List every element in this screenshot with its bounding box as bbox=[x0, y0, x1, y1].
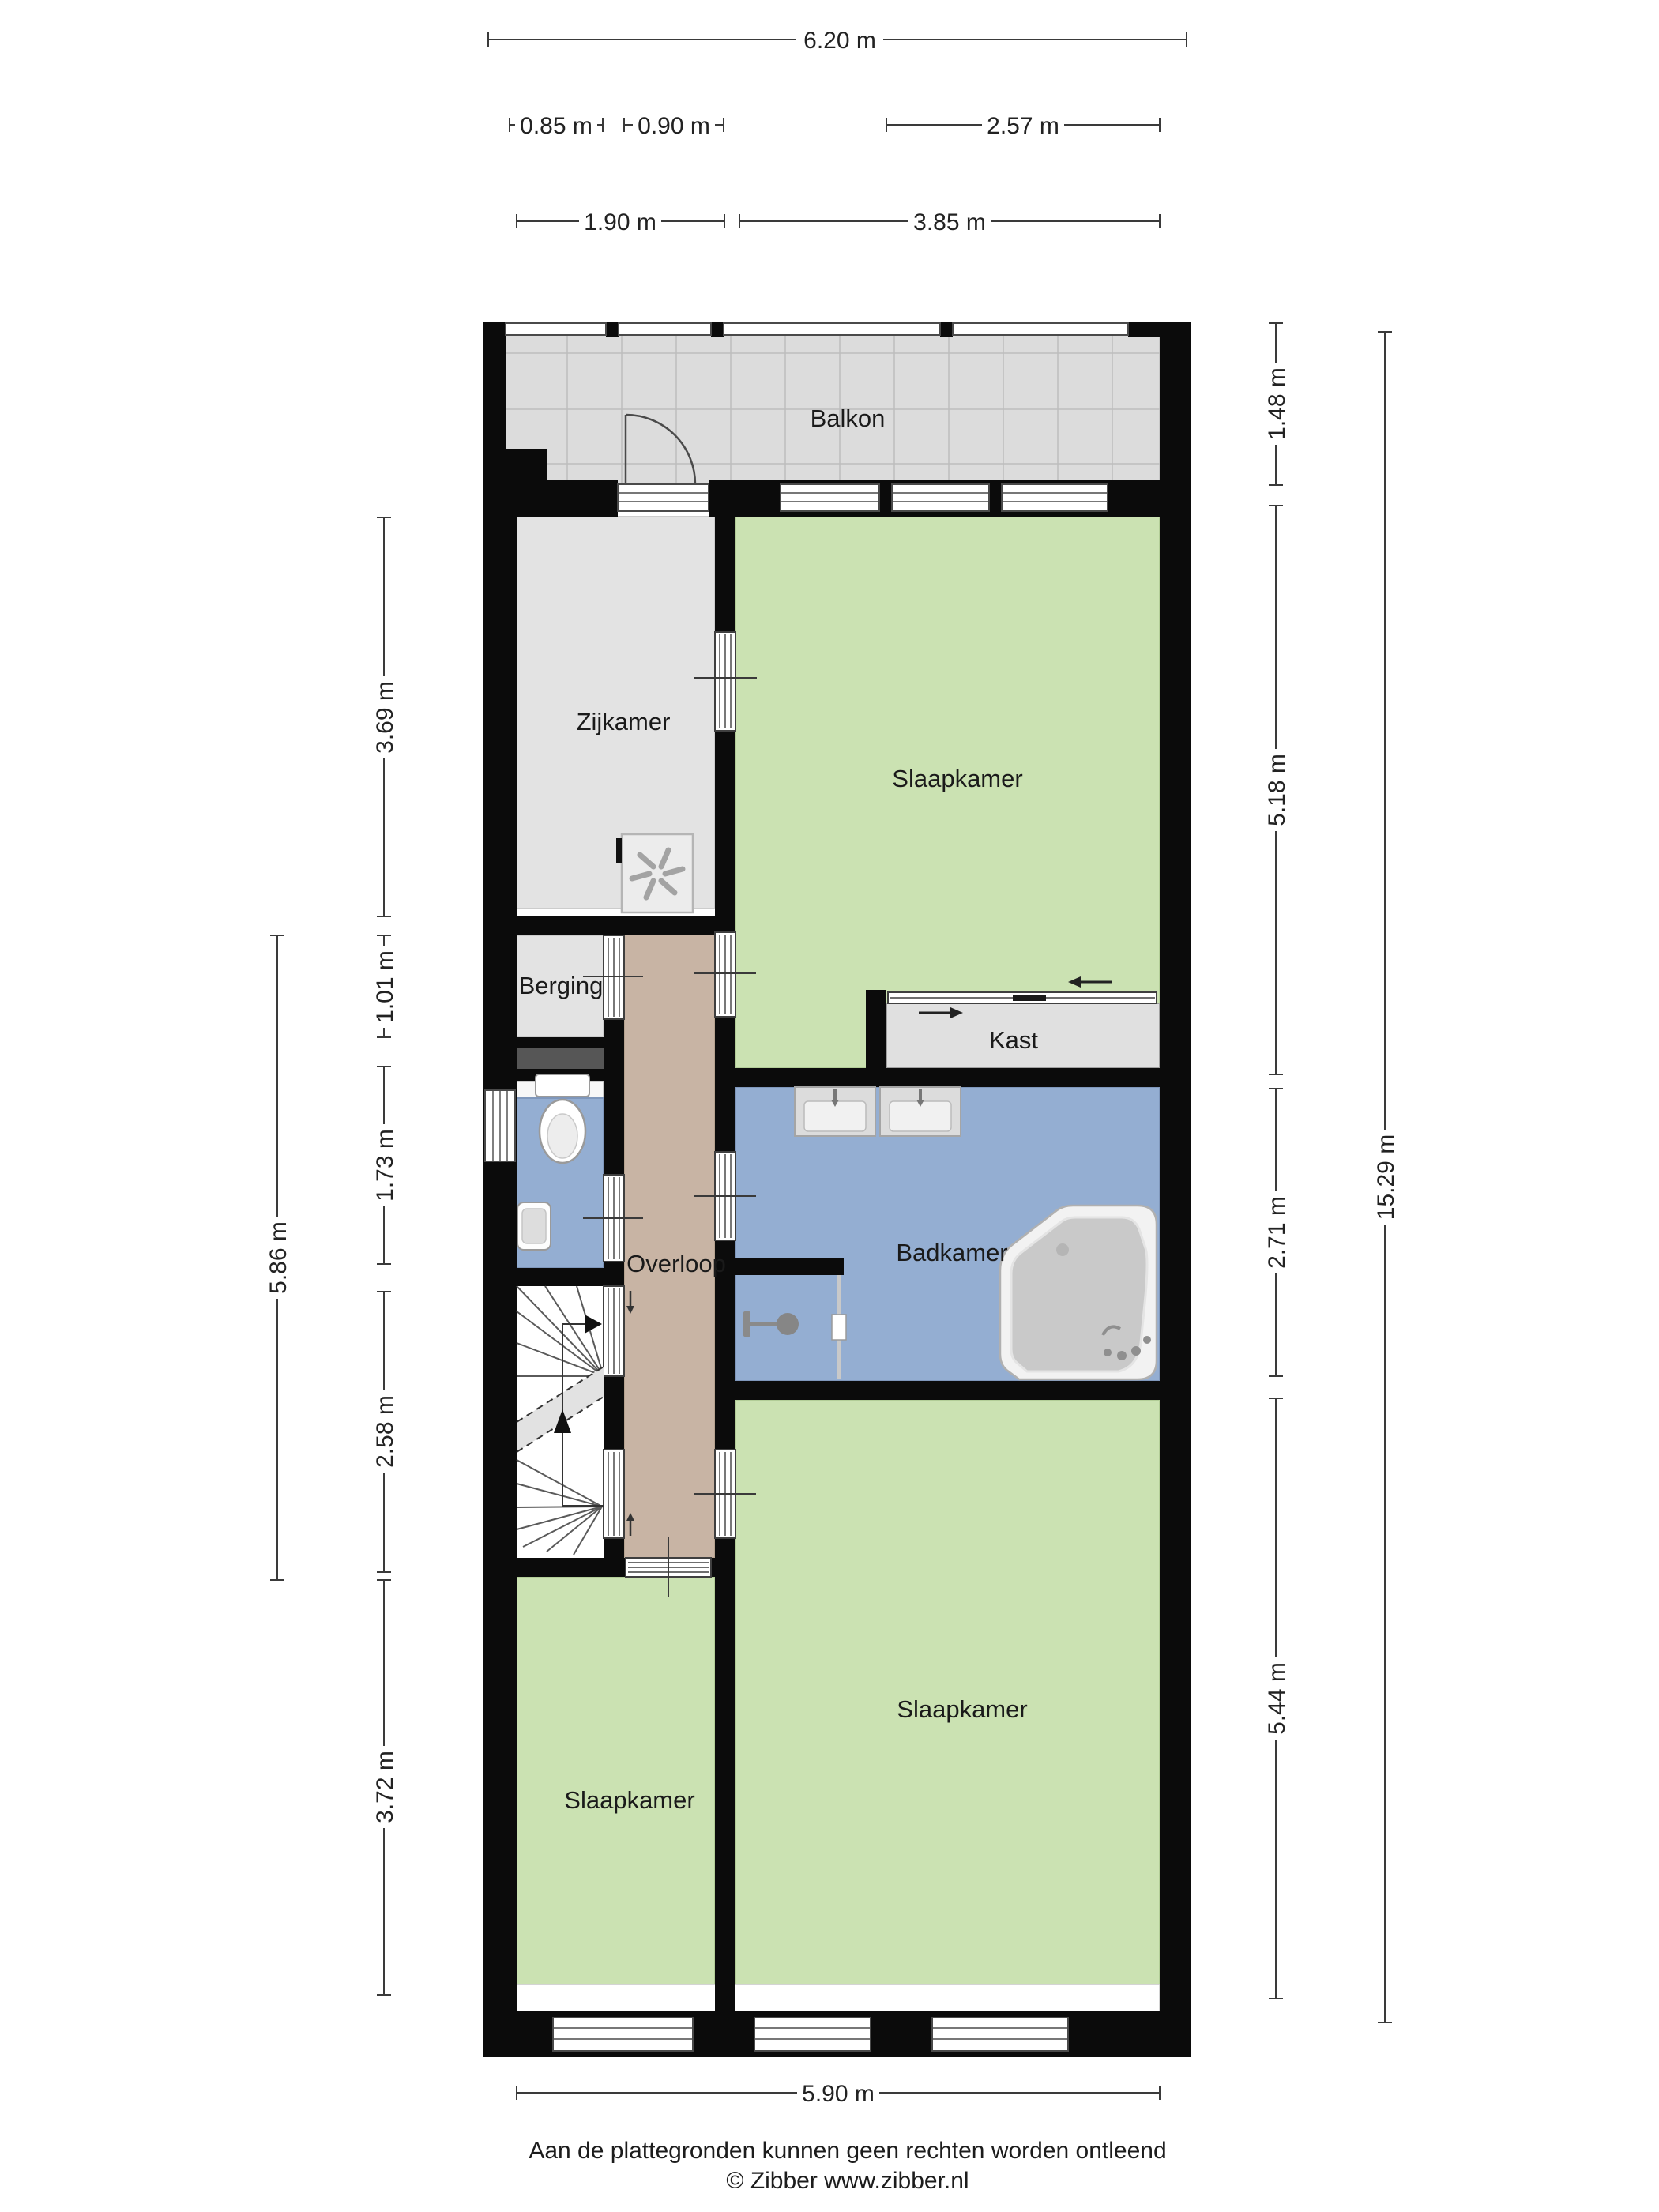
dim-top-090: 0.90 m bbox=[624, 111, 724, 139]
dim-top-385: 3.85 m bbox=[739, 208, 1160, 235]
window-toilet bbox=[485, 1090, 515, 1161]
balkon-door-sill bbox=[618, 484, 709, 511]
railing-segment bbox=[724, 323, 940, 335]
svg-text:3.72 m: 3.72 m bbox=[372, 1751, 398, 1823]
window-slaapkamer-top bbox=[781, 484, 1108, 511]
railing-segment bbox=[953, 323, 1128, 335]
railing-post bbox=[940, 322, 953, 337]
dim-left-586: 5.86 m bbox=[264, 935, 292, 1580]
footer-disclaimer: Aan de plattegronden kunnen geen rechten… bbox=[529, 2138, 1166, 2164]
dim-left-372: 3.72 m bbox=[371, 1580, 398, 1995]
label-berging: Berging bbox=[519, 972, 604, 999]
svg-text:3.69 m: 3.69 m bbox=[372, 681, 398, 754]
svg-text:5.86 m: 5.86 m bbox=[265, 1221, 292, 1294]
dim-right-total: 15.29 m bbox=[1371, 332, 1399, 2022]
label-balkon: Balkon bbox=[811, 404, 886, 432]
label-badkamer: Badkamer bbox=[896, 1239, 1007, 1266]
room-slaapkamer-top-floor bbox=[735, 517, 1160, 1068]
svg-text:5.18 m: 5.18 m bbox=[1264, 754, 1290, 826]
railing-post bbox=[606, 322, 619, 337]
railing-segment bbox=[619, 323, 711, 335]
dim-left-101: 1.01 m bbox=[371, 935, 398, 1037]
label-zijkamer: Zijkamer bbox=[577, 708, 671, 735]
label-overloop: Overloop bbox=[626, 1250, 726, 1277]
svg-text:15.29 m: 15.29 m bbox=[1373, 1134, 1399, 1220]
dim-bottom-total: 5.90 m bbox=[517, 2079, 1160, 2107]
svg-text:2.58 m: 2.58 m bbox=[372, 1395, 398, 1468]
label-slaapkamer-right: Slaapkamer bbox=[897, 1695, 1027, 1723]
dim-right-518: 5.18 m bbox=[1262, 506, 1290, 1074]
footer: Aan de plattegronden kunnen geen rechten… bbox=[529, 2138, 1166, 2194]
room-slaapkamer-right-floor bbox=[735, 1400, 1160, 1984]
dim-left-369: 3.69 m bbox=[371, 517, 398, 916]
door-stairs-top bbox=[604, 1286, 624, 1376]
svg-text:1.90 m: 1.90 m bbox=[584, 209, 656, 235]
dim-top-total: 6.20 m bbox=[488, 26, 1187, 54]
svg-text:1.73 m: 1.73 m bbox=[372, 1129, 398, 1202]
shower-stub-wall bbox=[735, 1258, 844, 1275]
svg-text:2.57 m: 2.57 m bbox=[987, 113, 1059, 139]
svg-text:1.48 m: 1.48 m bbox=[1264, 367, 1290, 440]
door-stairs-bottom bbox=[604, 1450, 624, 1538]
window-bottom-left bbox=[553, 2018, 693, 2051]
dim-right-271: 2.71 m bbox=[1262, 1089, 1290, 1376]
svg-text:5.44 m: 5.44 m bbox=[1264, 1662, 1290, 1735]
shower-head-icon bbox=[777, 1313, 799, 1335]
label-kast: Kast bbox=[989, 1026, 1038, 1054]
window-bottom-right bbox=[932, 2018, 1068, 2051]
label-slaapkamer-top: Slaapkamer bbox=[892, 765, 1022, 792]
room-overloop-floor bbox=[624, 927, 715, 1558]
svg-text:0.90 m: 0.90 m bbox=[638, 113, 710, 139]
svg-text:3.85 m: 3.85 m bbox=[913, 209, 986, 235]
boiler-unit bbox=[616, 834, 693, 912]
dim-top-085: 0.85 m bbox=[510, 111, 603, 139]
window-bottom-middle bbox=[754, 2018, 871, 2051]
dim-right-544: 5.44 m bbox=[1262, 1398, 1290, 1999]
footer-copyright: © Zibber www.zibber.nl bbox=[726, 2168, 969, 2194]
toilet-wc bbox=[536, 1074, 589, 1163]
svg-text:0.85 m: 0.85 m bbox=[520, 113, 592, 139]
bay-sill bbox=[517, 1984, 1160, 2011]
dim-left-173: 1.73 m bbox=[371, 1066, 398, 1264]
dim-top-190: 1.90 m bbox=[517, 208, 724, 235]
kast-sliding-door bbox=[888, 992, 1157, 1003]
svg-text:1.01 m: 1.01 m bbox=[372, 950, 398, 1023]
floor-plan: 6.20 m 0.85 m 0.90 m 2.57 m 1.90 m bbox=[0, 0, 1659, 2212]
low-wall-strip bbox=[517, 1048, 604, 1069]
railing-segment bbox=[506, 323, 606, 335]
label-slaapkamer-left: Slaapkamer bbox=[564, 1786, 694, 1814]
dim-left-258: 2.58 m bbox=[371, 1292, 398, 1572]
railing-post bbox=[711, 322, 724, 337]
dim-top-257: 2.57 m bbox=[886, 111, 1160, 139]
svg-text:6.20 m: 6.20 m bbox=[803, 28, 876, 54]
dim-right-148: 1.48 m bbox=[1262, 323, 1290, 485]
svg-text:2.71 m: 2.71 m bbox=[1264, 1196, 1290, 1269]
toilet-sink bbox=[517, 1202, 551, 1250]
svg-text:5.90 m: 5.90 m bbox=[802, 2081, 875, 2107]
room-slaapkamer-left-floor bbox=[517, 1577, 715, 1984]
